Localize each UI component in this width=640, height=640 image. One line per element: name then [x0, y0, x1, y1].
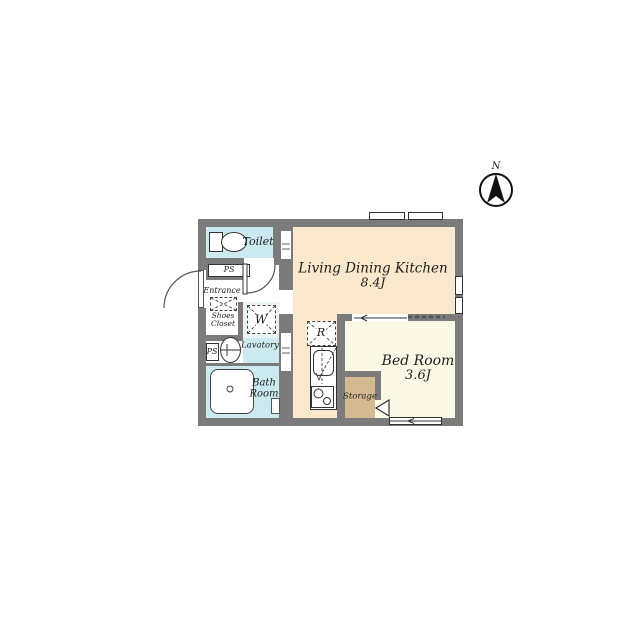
floor-plan: N Toilet PS Entrance Shoes Closet W PS L… — [0, 0, 640, 640]
bath-room-label: Bath Room — [249, 379, 278, 400]
linework-overlay — [0, 0, 640, 640]
compass-icon — [480, 174, 512, 206]
stove-burners — [314, 389, 331, 405]
fridge-space-label: R — [315, 327, 327, 339]
shoes-closet-line2: Closet — [211, 320, 235, 328]
toilet-label: Toilet — [242, 236, 273, 248]
storage-door-arrow — [376, 400, 389, 416]
sliding-door-track — [354, 315, 407, 321]
shoes-closet-label: Shoes Closet — [211, 312, 235, 328]
storage-label: Storage — [343, 393, 377, 402]
bedroom-size: 3.6J — [382, 369, 455, 383]
bathtub-drain — [227, 386, 233, 392]
toilet-door-arc — [243, 264, 275, 294]
entrance-door-arc — [164, 271, 201, 308]
washer-letter: W — [253, 313, 269, 327]
washer-space-label: W — [253, 314, 269, 327]
lavatory-faucet — [221, 344, 240, 356]
ldk-size: 8.4J — [298, 276, 447, 289]
bath-line1: Bath — [249, 379, 278, 390]
bedroom-window-track — [390, 419, 441, 424]
ldk-name: Living Dining Kitchen — [298, 261, 447, 275]
fridge-letter: R — [315, 326, 327, 339]
entrance-label: Entrance — [203, 287, 240, 295]
shoes-closet-cross — [211, 298, 236, 310]
kitchen-dashed-lines — [316, 348, 336, 384]
ps-upper-label: PS — [224, 266, 235, 274]
niche-shelf-ticks — [282, 244, 290, 353]
ldk-label: Living Dining Kitchen 8.4J — [298, 261, 447, 288]
compass-north-label: N — [492, 162, 501, 173]
ps-lower-label: PS — [207, 348, 218, 356]
lavatory-label: Lavatory — [241, 342, 279, 351]
bedroom-name: Bed Room — [382, 354, 455, 369]
bedroom-label: Bed Room 3.6J — [382, 354, 455, 382]
bath-line2: Room — [249, 389, 278, 400]
